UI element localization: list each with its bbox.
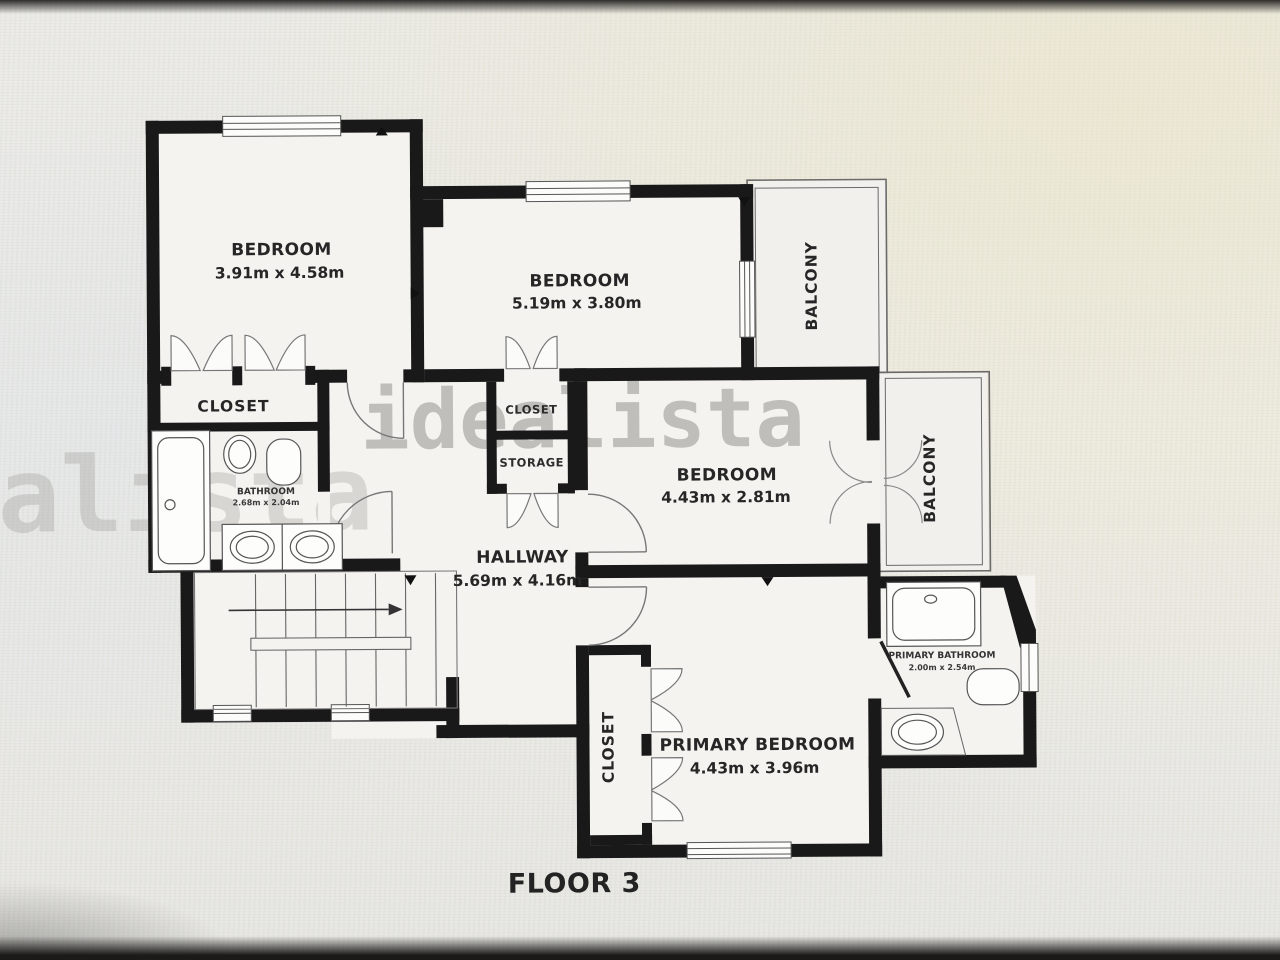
bathroom-dims: 2.68m x 2.04m [233, 498, 300, 507]
hallway-dims: 5.69m x 4.16m [453, 571, 583, 590]
hallway-label: HALLWAY [476, 547, 569, 568]
primary-bidet [967, 669, 1019, 705]
primary-bedroom-dims: 4.43m x 3.96m [690, 759, 820, 778]
bathtub [152, 431, 211, 571]
floor-title: FLOOR 3 [508, 868, 641, 900]
bedroom2-dims: 5.19m x 3.80m [512, 294, 642, 313]
closet-primary-label: CLOSET [599, 711, 617, 783]
bedroom3-label: BEDROOM [677, 465, 778, 486]
photo-dark-edge-bottom [0, 936, 1280, 960]
primary-bathtub [887, 582, 981, 647]
bidet [267, 439, 301, 485]
closet-left-label: CLOSET [197, 397, 269, 415]
closet-middle-label: CLOSET [505, 402, 557, 416]
bedroom3-dims: 4.43m x 2.81m [661, 488, 791, 507]
double-sink [222, 524, 342, 571]
window-stairs-right [331, 705, 369, 721]
storage-label: STORAGE [499, 455, 564, 469]
balcony-right-label: BALCONY [921, 433, 940, 523]
primary-bedroom-label: PRIMARY BEDROOM [659, 735, 855, 756]
bedroom1-dims: 3.91m x 4.58m [215, 264, 345, 283]
bathroom-label: BATHROOM [237, 487, 295, 497]
window-primary-bedroom [687, 842, 791, 859]
floor-plan: idealista idealista [0, 0, 1280, 960]
window-bedroom1-top [223, 116, 341, 137]
primary-bathroom-dims: 2.00m x 2.54m [909, 663, 976, 672]
bedroom2-label: BEDROOM [529, 271, 630, 292]
toilet [224, 435, 256, 473]
bedroom1-label: BEDROOM [231, 240, 332, 261]
window-stairs-left [213, 705, 251, 721]
window-bedroom2-balcony-door [740, 261, 755, 337]
window-primary-bathroom [1021, 643, 1038, 691]
balcony-top-label: BALCONY [802, 241, 821, 331]
floor-plan-photo: idealista idealista [0, 0, 1280, 960]
window-bedroom2-top [526, 181, 630, 202]
primary-bathroom-label: PRIMARY BATHROOM [888, 651, 995, 662]
